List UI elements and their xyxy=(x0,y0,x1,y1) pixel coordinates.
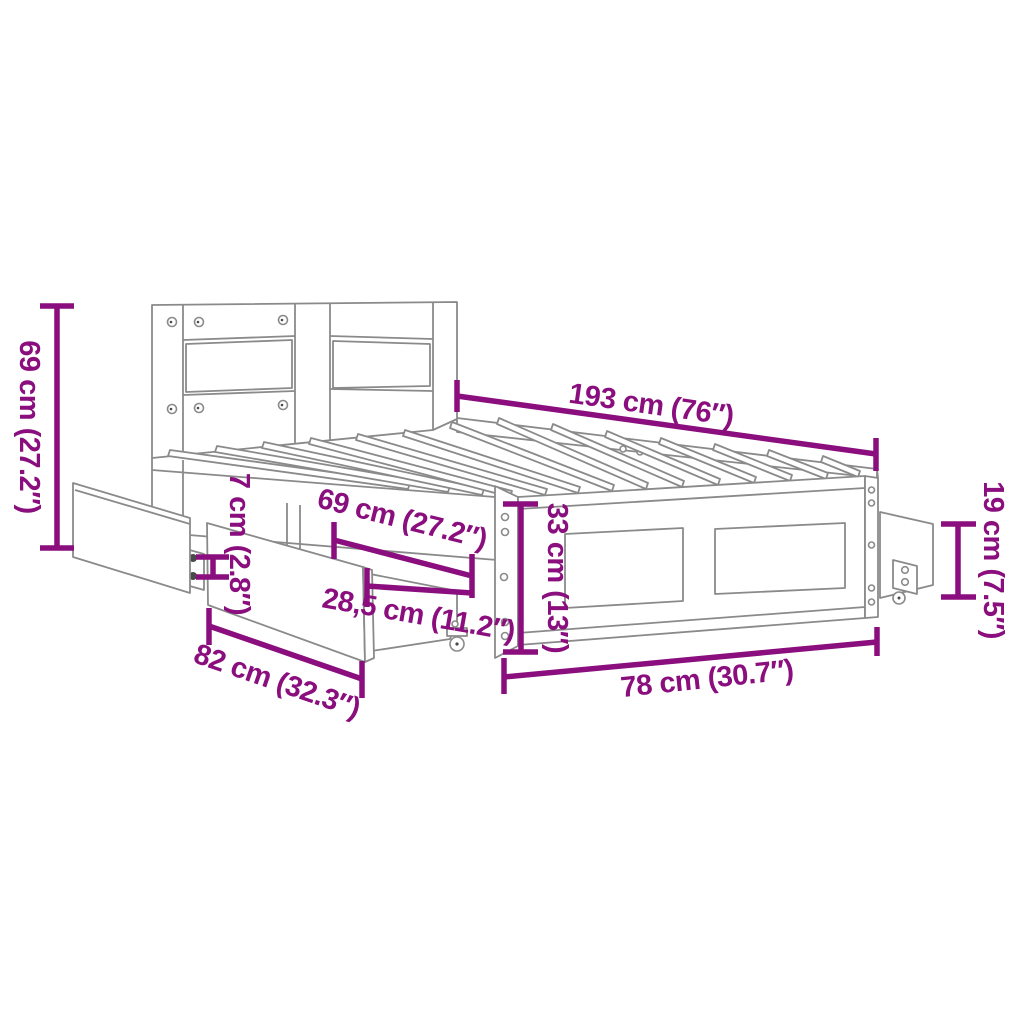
right-drawer xyxy=(880,512,933,604)
dimension-drawer-gap: 7 cm (2.8″) xyxy=(196,473,255,615)
dimension-headboard-height: 69 cm (27.2″) xyxy=(13,306,74,548)
foot-end-post xyxy=(865,469,878,618)
bed-diagram-svg: 69 cm (27.2″) 193 cm (76″) 7 cm (2.8″) 6… xyxy=(0,0,1024,1024)
dimension-foot-drawer-height: 19 cm (7.5″) xyxy=(941,481,1009,639)
dimension-label: 19 cm (7.5″) xyxy=(977,481,1009,639)
bed-drawing xyxy=(73,302,933,662)
dimension-label: 69 cm (27.2″) xyxy=(13,340,45,513)
dimension-label: 7 cm (2.8″) xyxy=(223,473,255,615)
dimension-label: 33 cm (13″) xyxy=(541,503,573,653)
product-dimension-diagram: 69 cm (27.2″) 193 cm (76″) 7 cm (2.8″) 6… xyxy=(0,0,1024,1024)
